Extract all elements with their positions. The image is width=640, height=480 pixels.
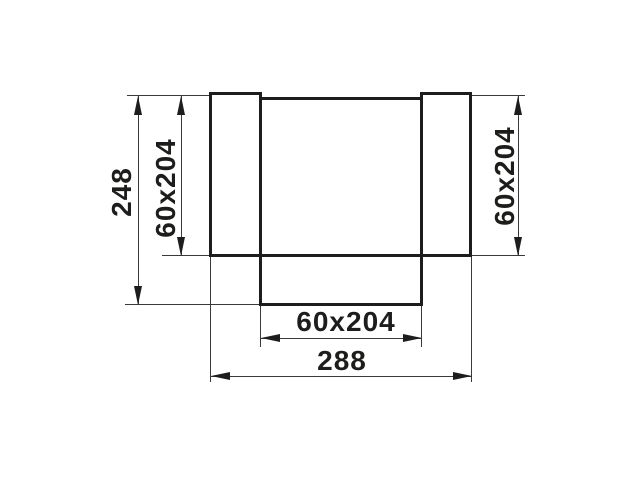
technical-drawing-canvas: 248 60x204 60x204 60x204 288 <box>0 0 640 480</box>
dimension-line-overall-height <box>138 96 139 305</box>
left-flange-outline <box>209 92 262 257</box>
arrowhead-down-icon <box>177 237 185 256</box>
dimension-label-overall-width: 288 <box>317 345 367 377</box>
dimension-label-left-port: 60x204 <box>150 138 182 237</box>
arrowhead-right-icon <box>453 372 472 380</box>
extension-line-width-right <box>471 257 472 382</box>
arrowhead-left-icon <box>211 372 230 380</box>
body-top-edge <box>259 97 423 100</box>
bottom-branch-outline <box>259 254 423 306</box>
arrowhead-up-icon <box>514 96 522 115</box>
dimension-line-bottom-port <box>261 338 421 339</box>
arrowhead-down-icon <box>134 286 142 305</box>
right-flange-outline <box>420 92 472 257</box>
extension-line-width-left <box>210 257 211 382</box>
dimension-label-bottom-port: 60x204 <box>296 306 395 338</box>
arrowhead-down-icon <box>514 237 522 256</box>
dimension-label-overall-height: 248 <box>106 167 138 217</box>
extension-line-bottom-left <box>125 304 259 305</box>
arrowhead-right-icon <box>403 334 422 342</box>
extension-line-mid-left <box>162 255 209 256</box>
dimension-label-right-port: 60x204 <box>489 126 521 225</box>
arrowhead-up-icon <box>134 96 142 115</box>
arrowhead-up-icon <box>177 96 185 115</box>
arrowhead-left-icon <box>261 334 280 342</box>
